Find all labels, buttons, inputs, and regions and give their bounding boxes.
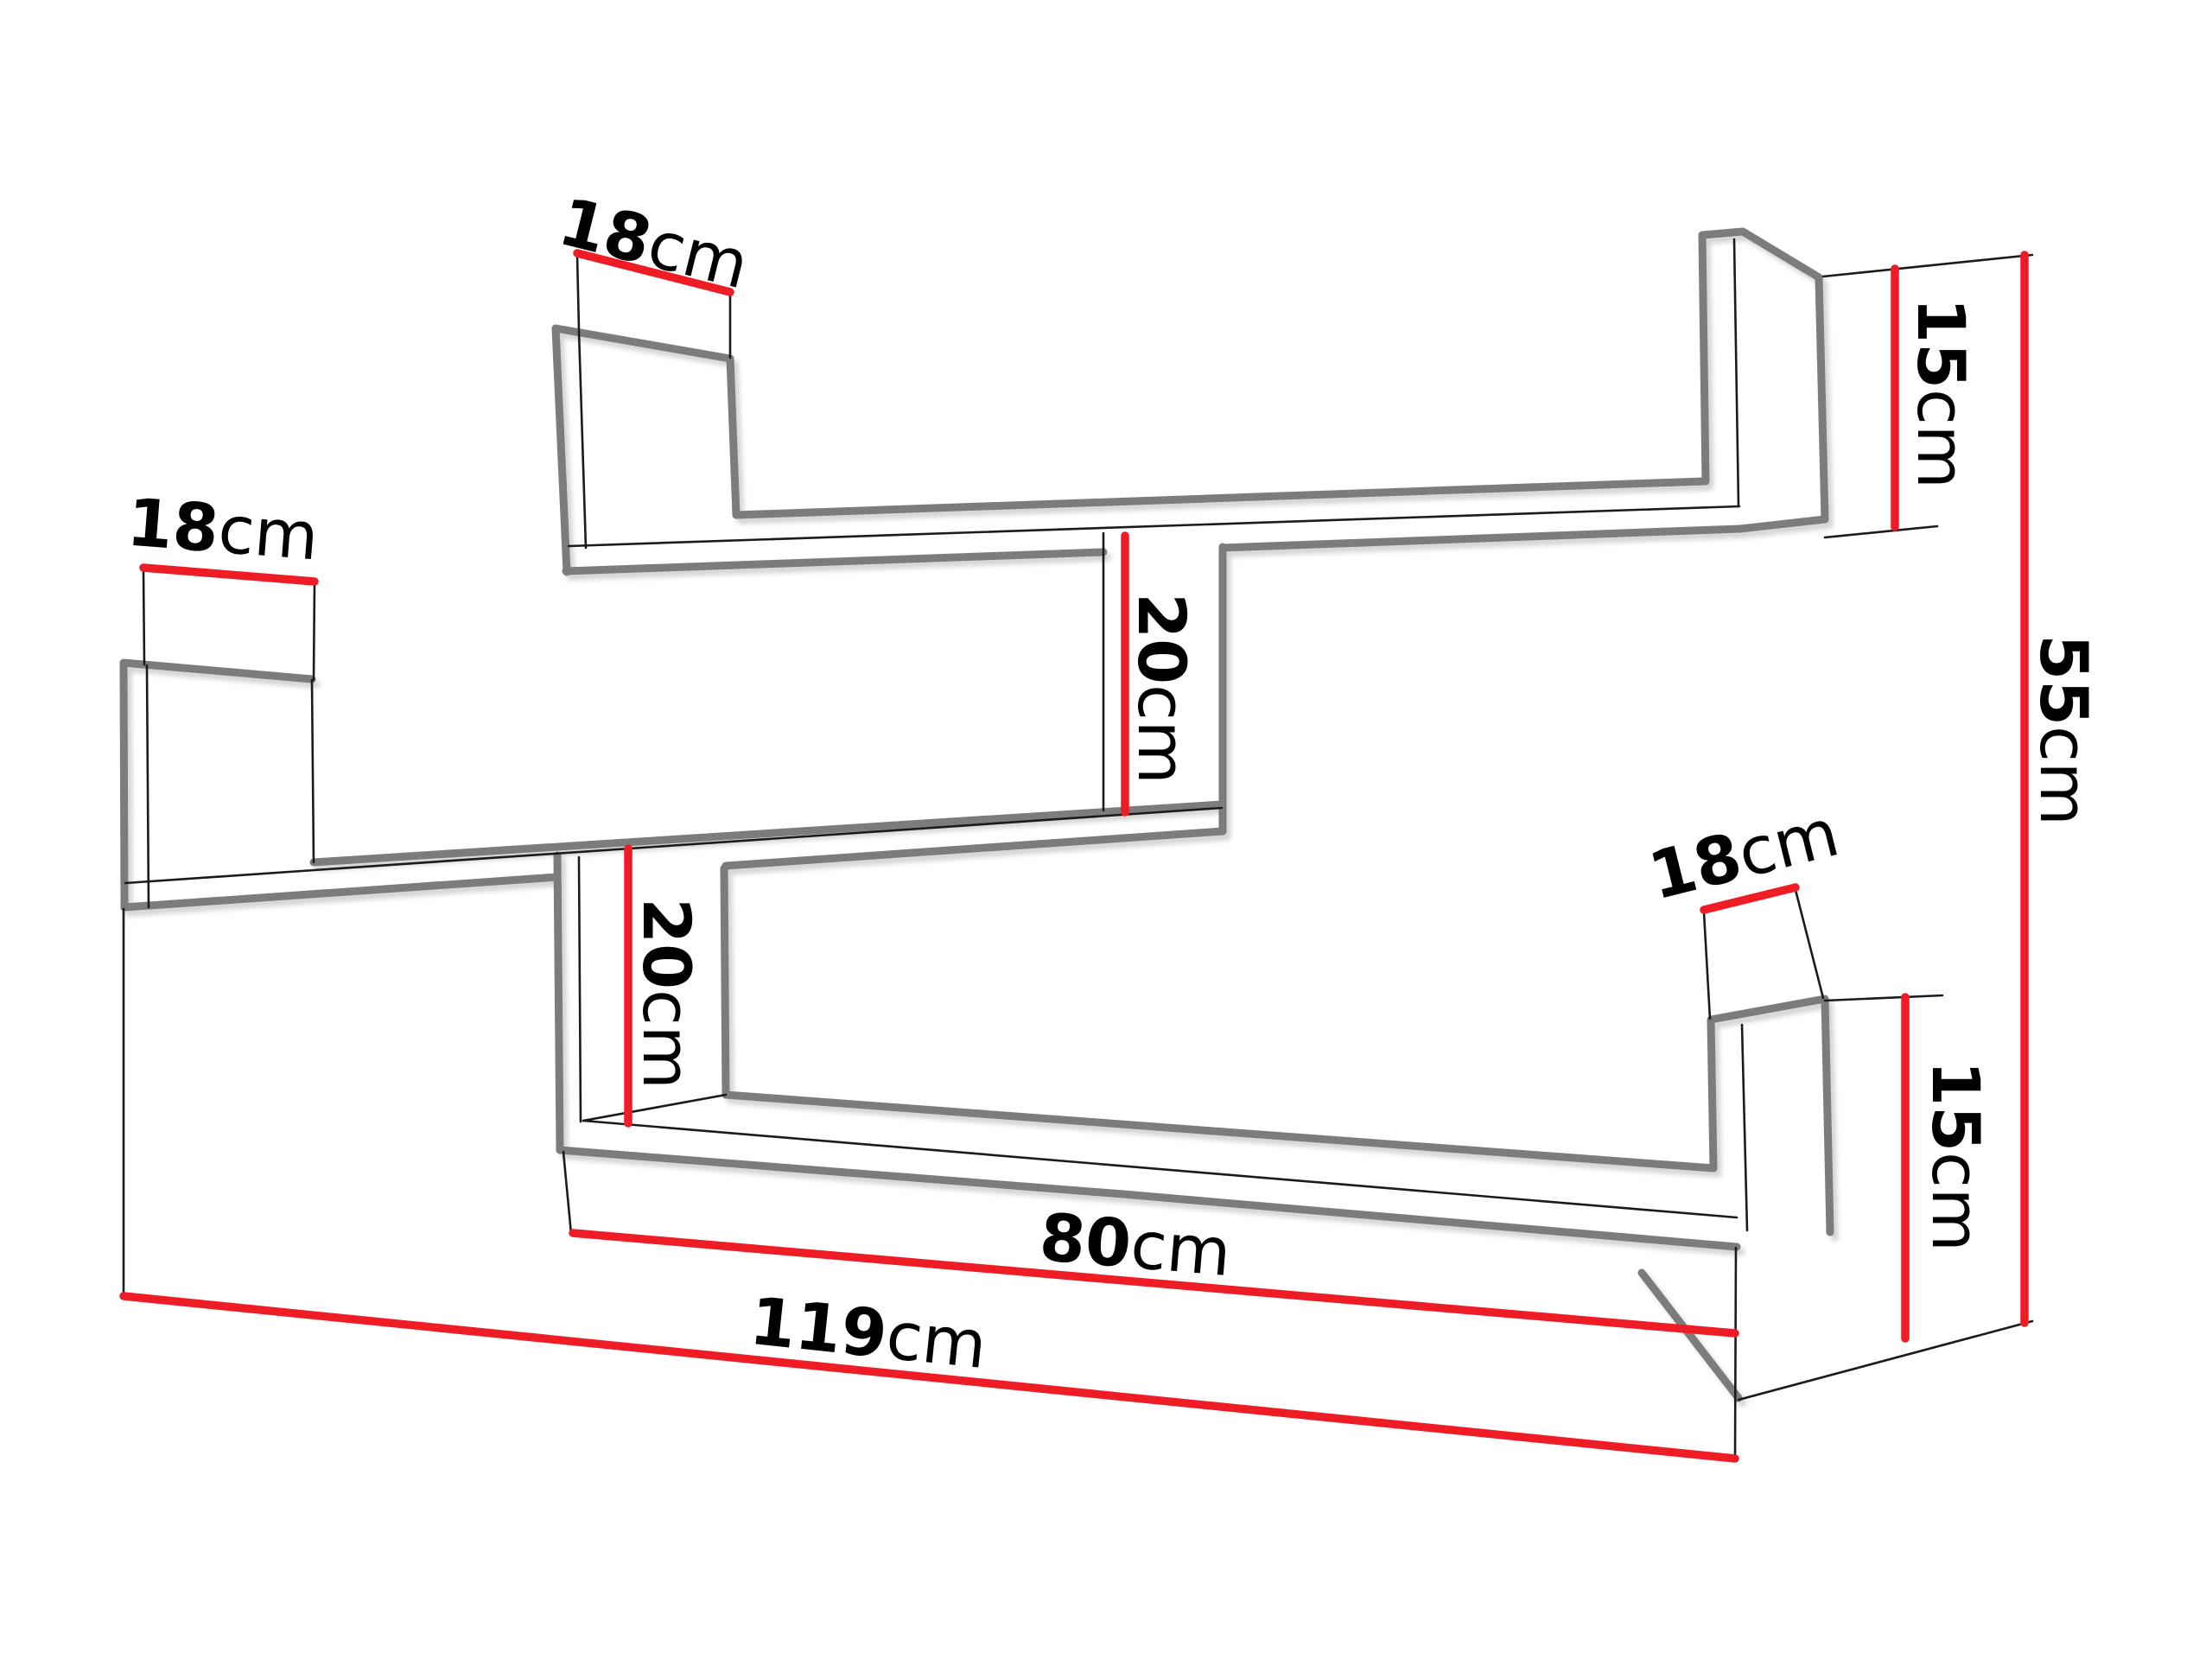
lower-divider-bottom-edge bbox=[583, 1095, 726, 1121]
mid-panel-right-edge bbox=[312, 680, 314, 862]
mid-panel-thickness-edge bbox=[147, 665, 149, 907]
top-shelf-back-top-edge bbox=[736, 481, 1704, 515]
label-20-lower: 20cm bbox=[629, 898, 706, 1090]
label-20-upper: 20cm bbox=[1124, 593, 1201, 785]
shelf-dimension-diagram: 18cm 18cm 18cm 15cm 15cm 20cm 20cm 55cm … bbox=[0, 0, 2212, 1659]
label-80: 80cm bbox=[1037, 1198, 1234, 1290]
label-15-top: 15cm bbox=[1904, 297, 1980, 489]
lower-divider-thickness-edge bbox=[579, 857, 581, 1122]
ext-55-15-bottom bbox=[1738, 1321, 2032, 1400]
bottom-shelf-right-panel bbox=[1711, 999, 1830, 1232]
ext-80-left bbox=[563, 1152, 571, 1234]
ext-18left-right bbox=[314, 584, 315, 680]
label-119: 119cm bbox=[747, 1281, 990, 1382]
ext-55-15-top bbox=[1823, 255, 2032, 276]
bottom-right-panel-thickness-edge bbox=[1742, 1025, 1747, 1230]
ext-18left-left bbox=[143, 570, 144, 664]
top-shelf-right-panel bbox=[1702, 232, 1825, 529]
label-15-bottom: 15cm bbox=[1918, 1060, 1995, 1252]
shelf-outlines-thick bbox=[124, 232, 1830, 1398]
ext-18top-left bbox=[577, 256, 579, 329]
bottom-shelf-back-top-edge bbox=[726, 1095, 1713, 1168]
lower-divider-left-edge bbox=[557, 855, 560, 1150]
diagram-canvas: 18cm 18cm 18cm 15cm 15cm 20cm 20cm 55cm … bbox=[0, 0, 2212, 1659]
dimension-labels: 18cm 18cm 18cm 15cm 15cm 20cm 20cm 55cm … bbox=[124, 182, 2102, 1383]
ext-80-119-right bbox=[1735, 1248, 1736, 1459]
middle-shelf-bottom-edge-left bbox=[124, 877, 557, 907]
top-shelf-bottom-edge-left bbox=[566, 552, 1103, 571]
label-18-top: 18cm bbox=[552, 182, 757, 303]
ext-15top-bottom bbox=[1825, 526, 1937, 537]
middle-shelf-back-top-edge bbox=[314, 804, 1222, 862]
middle-shelf-left-panel bbox=[124, 663, 312, 907]
ext-15bottom-top bbox=[1825, 995, 1942, 1001]
label-55: 55cm bbox=[2026, 634, 2103, 826]
top-right-panel-thickness-edge bbox=[1734, 239, 1738, 506]
label-18-left: 18cm bbox=[124, 483, 321, 575]
top-panel-thickness-edge bbox=[579, 331, 586, 548]
ext-18right-right bbox=[1796, 890, 1823, 998]
lower-divider-right-edge bbox=[724, 868, 726, 1095]
ext-18right-left bbox=[1704, 912, 1710, 1019]
top-shelf-bottom-edge-right bbox=[1223, 529, 1740, 548]
